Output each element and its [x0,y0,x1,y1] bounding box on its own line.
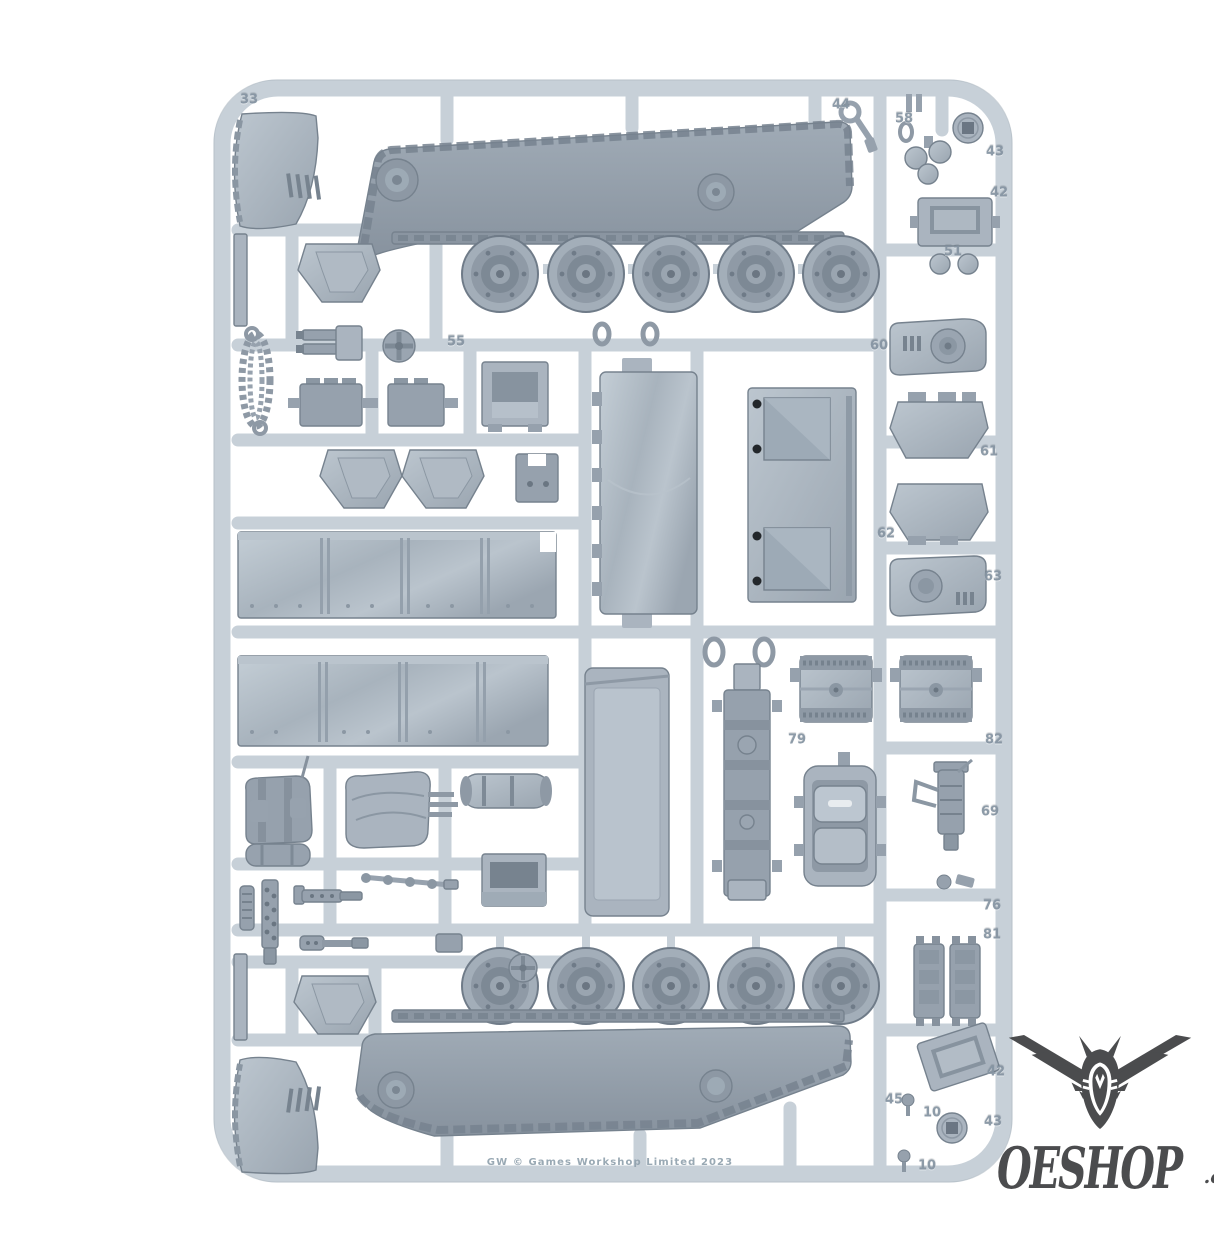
watermark-brand: OESHOP [997,1140,1181,1197]
part-number: 45 [885,1093,903,1108]
tray-part [585,668,669,916]
part-number: 42 [990,186,1008,201]
part-number: 60 [870,339,888,354]
watermark: OESHOP.co.uk [993,1028,1214,1200]
ladder-part [712,664,782,900]
winged-helmet-icon [1005,1030,1195,1133]
chain-part [242,328,270,434]
part-number: 44 [832,98,850,113]
part-number: 69 [981,805,999,820]
skirt-panels [238,532,556,746]
part-number: 81 [983,928,1001,943]
part-number: 33 [240,93,258,108]
small-parts-bottom-right [898,936,1000,1172]
watermark-suffix: .co.uk [1204,1166,1214,1188]
hull-panels-center [592,358,856,628]
road-wheels-top [462,236,879,312]
part-number: 51 [944,245,962,260]
molded-copyright-text: GW © Games Workshop Limited 2023 [420,1157,800,1168]
stowage-parts [246,756,552,906]
part-number: 79 [788,733,806,748]
pump-part [914,760,975,889]
watermark-text: OESHOP.co.uk [997,1140,1214,1197]
track-assembly-bottom [356,1010,851,1136]
side-panels-right [890,319,988,616]
part-number: 43 [986,145,1004,160]
part-number: 62 [877,527,895,542]
part-number: 82 [985,733,1003,748]
roller-part [794,752,886,886]
fender-bottom-left [234,1057,321,1173]
part-number: 10 [923,1106,941,1121]
part-number: 61 [980,445,998,460]
part-number: 63 [984,570,1002,585]
part-number: 10 [918,1159,936,1174]
part-number: 76 [983,899,1001,914]
fender-top-left [234,112,321,228]
part-number: 58 [895,112,913,127]
part-number: 55 [447,335,465,350]
